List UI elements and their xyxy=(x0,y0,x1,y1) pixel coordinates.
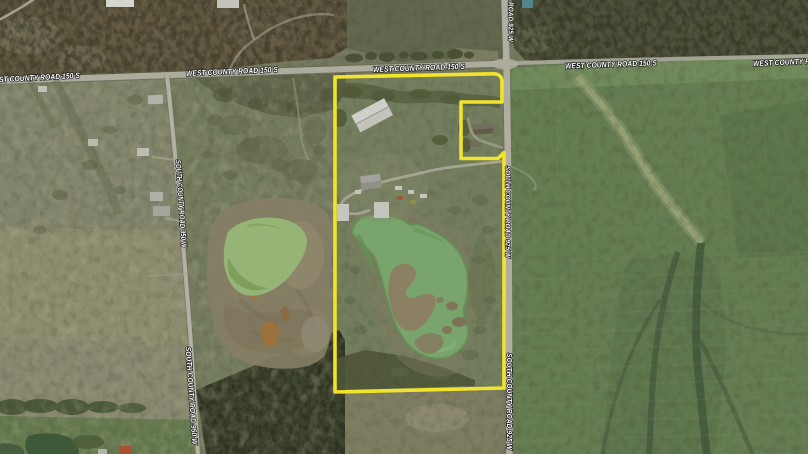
svg-text:SOUTH COUNTY ROAD 925 W: SOUTH COUNTY ROAD 925 W xyxy=(504,166,513,259)
svg-text:SOUTH COUNTY ROAD 925 W: SOUTH COUNTY ROAD 925 W xyxy=(505,353,514,451)
svg-text:ROAD 925 W: ROAD 925 W xyxy=(507,2,516,43)
